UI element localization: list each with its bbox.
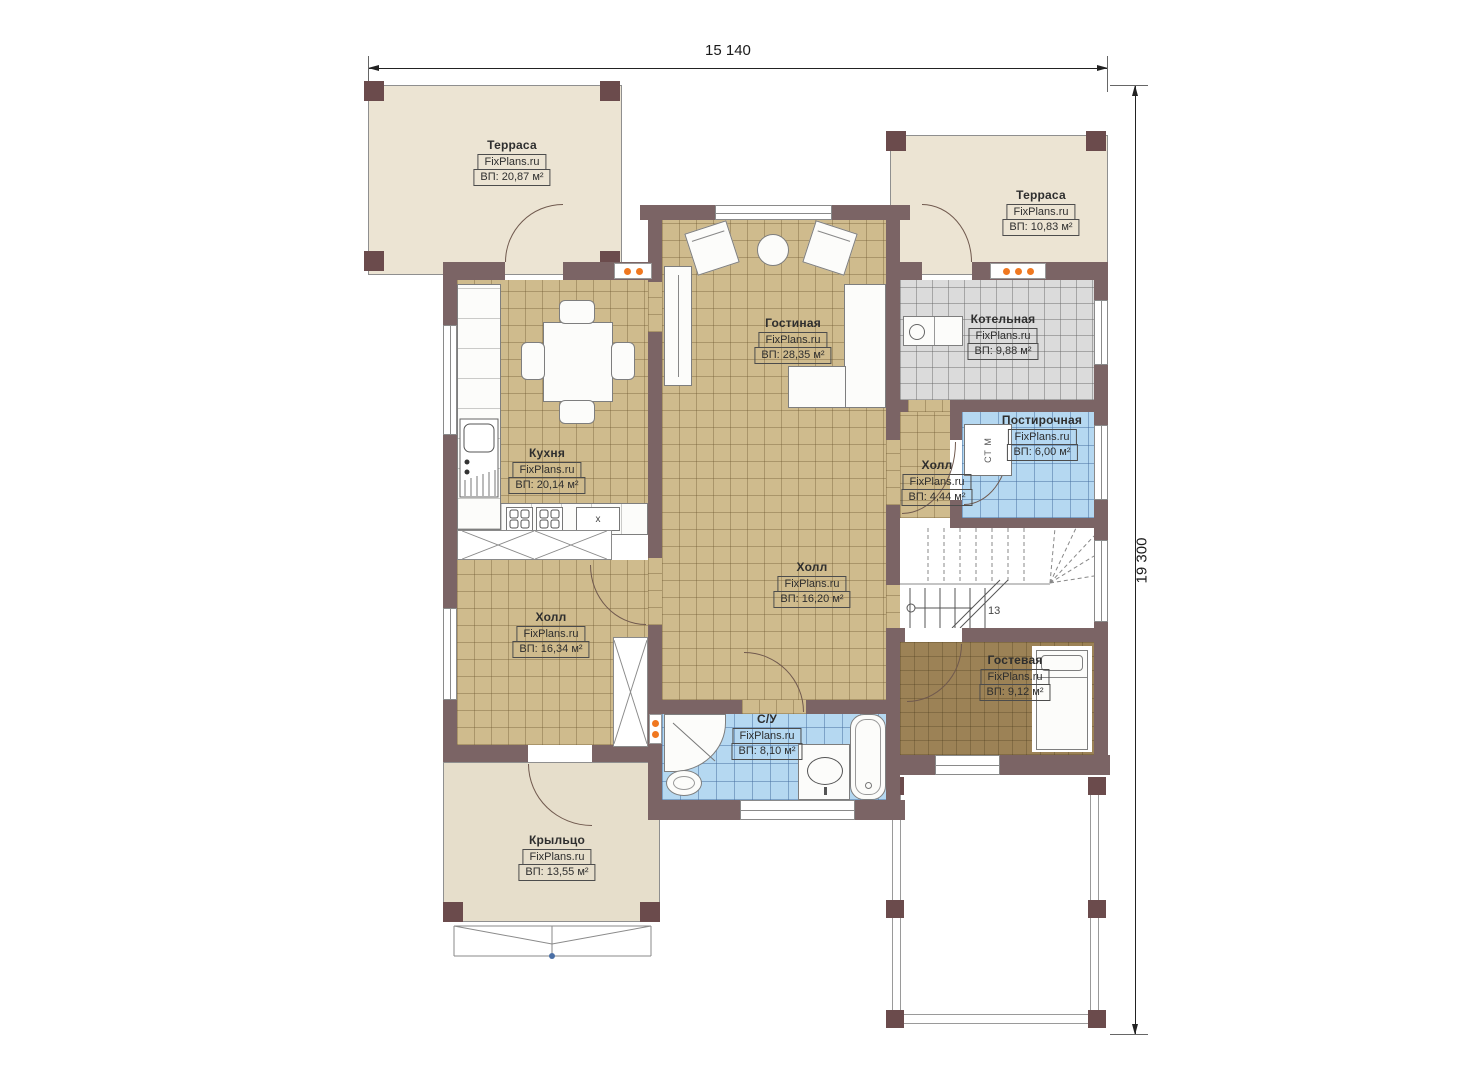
window — [1094, 300, 1108, 365]
wardrobe — [613, 637, 648, 747]
wall-segment — [886, 700, 900, 820]
room-label-kitchen: Кухня FixPlans.ru ВП: 20,14 м² — [508, 446, 585, 494]
coffee-table — [757, 234, 789, 266]
wall-segment — [1094, 365, 1108, 425]
toilet — [666, 770, 702, 796]
dimension-height-line — [1135, 85, 1136, 1035]
extension-line — [1110, 85, 1148, 86]
column-post — [886, 1010, 904, 1028]
room-area: ВП: 10,83 м² — [1002, 219, 1079, 235]
wall-segment — [962, 628, 1094, 642]
sofa-chaise — [788, 366, 846, 408]
room-watermark: FixPlans.ru — [902, 474, 971, 490]
room-label-porch: Крыльцо FixPlans.ru ВП: 13,55 м² — [518, 833, 595, 881]
column-post — [1086, 131, 1106, 151]
wall-segment — [900, 400, 908, 412]
room-label-laundry: Постирочная FixPlans.ru ВП: 6,00 м² — [1002, 413, 1082, 461]
room-area: ВП: 16,34 м² — [512, 641, 589, 657]
dining-table — [543, 322, 613, 402]
floor-patch — [648, 558, 662, 625]
room-name: Гостиная — [765, 316, 821, 330]
room-label-hall-center: Холл FixPlans.ru ВП: 16,20 м² — [773, 560, 850, 608]
tv-console — [664, 266, 692, 386]
wall-segment — [443, 435, 457, 608]
extension-line — [1110, 1034, 1148, 1035]
room-area: ВП: 9,88 м² — [967, 343, 1038, 359]
room-area: ВП: 6,00 м² — [1006, 444, 1077, 460]
room-area: ВП: 20,14 м² — [508, 477, 585, 493]
column-post — [886, 900, 904, 918]
room-name: Котельная — [971, 312, 1036, 326]
dimension-width-label: 15 140 — [705, 42, 751, 59]
window — [715, 205, 832, 220]
column-post — [886, 131, 906, 151]
arrowhead-left — [368, 65, 379, 71]
room-watermark: FixPlans.ru — [512, 462, 581, 478]
stove-burners — [506, 507, 564, 531]
radiator — [614, 263, 652, 279]
room-watermark: FixPlans.ru — [980, 669, 1049, 685]
wall-segment — [886, 220, 900, 440]
floor-patch — [886, 585, 900, 630]
room-watermark: FixPlans.ru — [732, 728, 801, 744]
sofa — [844, 284, 886, 408]
window — [935, 755, 1000, 775]
bathtub — [850, 714, 886, 800]
boiler-unit — [903, 316, 963, 346]
room-name: Терраса — [1016, 188, 1066, 202]
wall-segment — [443, 700, 457, 762]
washing-machine-label: СТ М — [983, 437, 993, 463]
extension-line — [1107, 56, 1108, 92]
wall-segment — [640, 205, 715, 220]
room-label-boiler: Котельная FixPlans.ru ВП: 9,88 м² — [967, 312, 1038, 360]
wall-segment — [1094, 500, 1108, 540]
wall-segment — [648, 625, 662, 712]
dining-chair — [559, 400, 595, 424]
room-name: Холл — [922, 458, 953, 472]
room-name: Холл — [536, 610, 567, 624]
boiler-dial — [909, 324, 925, 340]
room-watermark: FixPlans.ru — [777, 576, 846, 592]
wall-segment — [886, 505, 900, 585]
porch-steps — [450, 922, 655, 964]
column-post — [600, 81, 620, 101]
room-watermark: FixPlans.ru — [516, 626, 585, 642]
column-post — [1088, 1010, 1106, 1028]
room-watermark: FixPlans.ru — [1006, 204, 1075, 220]
wall-segment — [1094, 262, 1108, 300]
room-watermark: FixPlans.ru — [758, 332, 827, 348]
wall-segment — [443, 262, 457, 325]
stairs-count: 13 — [988, 605, 1000, 617]
window — [443, 325, 457, 435]
radiator — [649, 714, 662, 744]
room-watermark: FixPlans.ru — [968, 328, 1037, 344]
wall-segment — [648, 700, 742, 714]
room-label-hall-left: Холл FixPlans.ru ВП: 16,34 м² — [512, 610, 589, 658]
stairs: 13 — [900, 528, 1094, 628]
room-area: ВП: 4,44 м² — [901, 489, 972, 505]
wall-segment — [648, 332, 662, 558]
column-post — [1088, 777, 1106, 795]
floor-patch — [886, 440, 900, 505]
column-post — [640, 902, 660, 922]
window — [740, 800, 855, 820]
dimension-width-line — [368, 68, 1108, 69]
room-area: ВП: 28,35 м² — [754, 347, 831, 363]
room-label-living: Гостиная FixPlans.ru ВП: 28,35 м² — [754, 316, 831, 364]
window — [1094, 540, 1108, 622]
wall-segment — [1094, 622, 1108, 775]
room-label-guest: Гостевая FixPlans.ru ВП: 9,12 м² — [979, 653, 1050, 701]
room-watermark: FixPlans.ru — [522, 849, 591, 865]
arrowhead-up — [1132, 85, 1138, 96]
dining-chair — [521, 342, 545, 380]
room-area: ВП: 8,10 м² — [731, 743, 802, 759]
window — [1094, 425, 1108, 500]
room-name: Холл — [797, 560, 828, 574]
sink-counter — [798, 744, 850, 800]
column-post — [364, 81, 384, 101]
dining-chair — [559, 300, 595, 324]
floor-patch — [908, 400, 950, 412]
radiator — [990, 263, 1046, 279]
room-name: Гостевая — [987, 653, 1042, 667]
kitchen-sink — [459, 418, 499, 498]
room-name: Постирочная — [1002, 413, 1082, 427]
sink-basin — [807, 757, 843, 785]
column-post — [443, 902, 463, 922]
room-area: ВП: 13,55 м² — [518, 864, 595, 880]
dining-chair — [611, 342, 635, 380]
room-name: С/У — [757, 712, 777, 726]
room-name: Крыльцо — [529, 833, 585, 847]
room-label-terrace-top-right: Терраса FixPlans.ru ВП: 10,83 м² — [1002, 188, 1079, 236]
shower-cabin — [664, 714, 726, 772]
window — [443, 608, 457, 700]
wardrobe — [457, 530, 612, 560]
room-label-terrace-top-left: Терраса FixPlans.ru ВП: 20,87 м² — [473, 138, 550, 186]
pergola-bottom — [892, 1014, 1099, 1024]
sink-symbol-label: x — [596, 514, 601, 525]
room-area: ВП: 9,12 м² — [979, 684, 1050, 700]
wall-segment — [950, 518, 1094, 528]
room-name: Кухня — [529, 446, 565, 460]
room-label-hall-small: Холл FixPlans.ru ВП: 4,44 м² — [901, 458, 972, 506]
floor-patch — [648, 282, 662, 332]
column-post — [1088, 900, 1106, 918]
room-watermark: FixPlans.ru — [1007, 429, 1076, 445]
room-label-bathroom: С/У FixPlans.ru ВП: 8,10 м² — [731, 712, 802, 760]
room-area: ВП: 16,20 м² — [773, 591, 850, 607]
floor-plan: 15 140 19 300 — [0, 0, 1474, 1080]
room-watermark: FixPlans.ru — [477, 154, 546, 170]
wall-segment — [950, 400, 1094, 412]
column-post — [364, 251, 384, 271]
wall-segment — [832, 205, 910, 220]
room-area: ВП: 20,87 м² — [473, 169, 550, 185]
room-name: Терраса — [487, 138, 537, 152]
dimension-height-label: 19 300 — [1134, 531, 1151, 591]
wall-segment — [950, 405, 962, 440]
sink-symbol: x — [576, 507, 620, 531]
